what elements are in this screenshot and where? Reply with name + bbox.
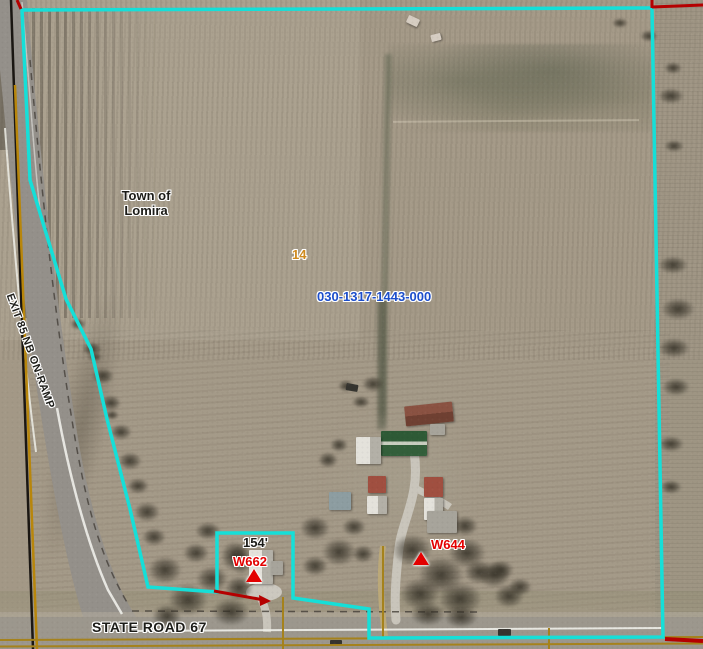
adjacent-line-topright-h <box>652 5 703 7</box>
adjacent-line-bottomright <box>665 639 703 641</box>
road-label-state-road-67: STATE ROAD 67 <box>92 619 207 635</box>
parcel-boundary-line[interactable] <box>22 8 663 638</box>
address-marker-w644-icon[interactable] <box>413 552 429 565</box>
municipality-line2: Lomira <box>124 203 167 218</box>
section-number-label: 14 <box>292 247 306 262</box>
address-label-w662[interactable]: W662 <box>233 554 267 569</box>
lot-dimension-label: 154' <box>243 535 268 550</box>
lot-line-arrowhead <box>259 595 271 606</box>
centerline-yellow-2 <box>0 644 703 647</box>
aerial-parcel-map-canvas[interactable]: Town of Lomira 14 030-1317-1443-000 154'… <box>0 0 703 649</box>
gis-overlay-layer <box>0 0 703 649</box>
municipality-label: Town of Lomira <box>100 188 192 218</box>
address-marker-w662-icon[interactable] <box>246 569 262 582</box>
parcel-id-label[interactable]: 030-1317-1443-000 <box>317 289 431 304</box>
adjacent-line-topleft <box>17 0 21 9</box>
municipality-line1: Town of <box>122 188 171 203</box>
lot-line-w662 <box>214 591 264 600</box>
adjacent-parcel-lines <box>17 0 703 641</box>
address-label-w644[interactable]: W644 <box>431 537 465 552</box>
